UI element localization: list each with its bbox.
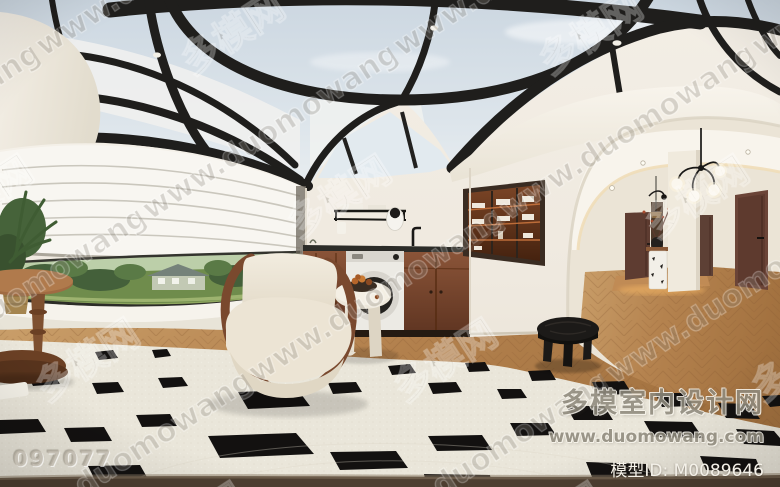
panorama-viewport: www.duomowang.com 多模网 [0,0,780,487]
watermark-tile-layer [0,0,780,487]
panorama-scene: www.duomowang.com 多模网 [0,0,780,487]
